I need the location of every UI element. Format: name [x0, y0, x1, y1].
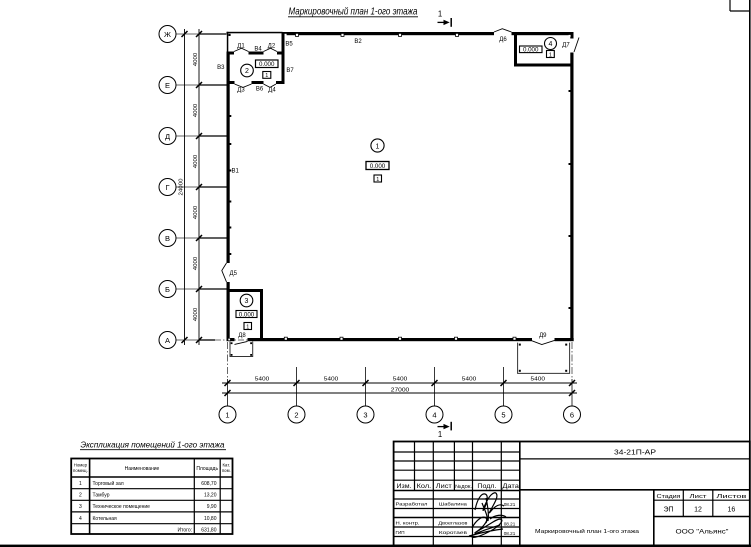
svg-text:631,80: 631,80 — [201, 527, 217, 533]
svg-text:Д5: Д5 — [230, 271, 238, 277]
svg-text:1: 1 — [225, 410, 229, 419]
svg-text:10,80: 10,80 — [204, 516, 217, 522]
svg-text:1: 1 — [376, 143, 380, 150]
svg-text:Д8: Д8 — [238, 333, 246, 339]
svg-text:27000: 27000 — [391, 388, 410, 394]
svg-text:В5: В5 — [285, 42, 293, 48]
svg-text:Маркировочный план 1-ого этажа: Маркировочный план 1-ого этажа — [535, 528, 640, 535]
svg-text:Д: Д — [165, 132, 170, 141]
svg-text:4: 4 — [432, 410, 436, 419]
svg-text:Коротаев: Коротаев — [439, 530, 468, 535]
svg-text:Номер: Номер — [74, 463, 88, 468]
svg-text:Торговый зал: Торговый зал — [93, 480, 124, 487]
svg-text:2: 2 — [294, 410, 298, 419]
svg-text:Изм.: Изм. — [397, 484, 412, 490]
svg-text:08.21: 08.21 — [504, 502, 516, 507]
svg-text:4000: 4000 — [193, 53, 199, 67]
svg-text:0.000: 0.000 — [259, 61, 275, 68]
svg-text:В3: В3 — [217, 65, 225, 71]
svg-text:Разработал: Разработал — [396, 502, 428, 507]
svg-text:2: 2 — [79, 493, 82, 499]
svg-text:6: 6 — [570, 410, 574, 419]
svg-text:1: 1 — [265, 73, 268, 79]
svg-text:ГИП: ГИП — [396, 530, 405, 535]
svg-text:Экспликация помещений 1-ого эт: Экспликация помещений 1-ого этажа — [81, 440, 225, 450]
svg-text:4000: 4000 — [193, 104, 199, 118]
svg-text:Лист: Лист — [690, 494, 708, 500]
svg-text:Д4: Д4 — [268, 88, 276, 94]
svg-text:Двоеглазов: Двоеглазов — [438, 520, 468, 525]
svg-text:0.000: 0.000 — [370, 163, 386, 170]
svg-text:608,70: 608,70 — [201, 481, 217, 487]
svg-text:Площадь: Площадь — [196, 466, 218, 472]
svg-text:0.000: 0.000 — [523, 47, 539, 54]
svg-text:Листов: Листов — [716, 494, 746, 500]
svg-text:1: 1 — [549, 52, 552, 58]
svg-text:4000: 4000 — [193, 308, 199, 322]
svg-text:4000: 4000 — [193, 257, 199, 271]
svg-text:пом.: пом. — [222, 468, 231, 473]
svg-text:Шабалина: Шабалина — [439, 502, 468, 507]
svg-text:Техническое помещение: Техническое помещение — [93, 504, 151, 510]
svg-text:5400: 5400 — [462, 377, 477, 383]
svg-text:4: 4 — [79, 516, 82, 522]
svg-text:В6: В6 — [256, 87, 264, 93]
svg-text:5400: 5400 — [324, 377, 339, 383]
svg-text:№док.: №док. — [455, 484, 472, 490]
svg-text:3: 3 — [245, 298, 249, 305]
svg-text:Тамбур: Тамбур — [93, 493, 110, 499]
svg-text:2: 2 — [245, 68, 249, 75]
svg-text:5400: 5400 — [531, 377, 546, 383]
svg-text:13,20: 13,20 — [204, 493, 217, 499]
svg-text:5400: 5400 — [393, 377, 408, 383]
svg-text:В2: В2 — [354, 39, 362, 45]
svg-text:Маркировочный план 1-ого этажа: Маркировочный план 1-ого этажа — [289, 7, 418, 18]
svg-text:В4: В4 — [254, 47, 262, 53]
svg-text:Д1: Д1 — [237, 44, 245, 50]
svg-text:В7: В7 — [286, 68, 294, 74]
svg-text:Лист: Лист — [436, 484, 452, 490]
svg-text:Н. контр.: Н. контр. — [396, 520, 420, 525]
svg-text:Д3: Д3 — [237, 88, 245, 94]
svg-text:1: 1 — [246, 324, 249, 330]
svg-text:5400: 5400 — [255, 377, 270, 383]
svg-text:24000: 24000 — [179, 179, 185, 196]
svg-text:Итого:: Итого: — [178, 527, 193, 533]
svg-text:0.000: 0.000 — [239, 311, 255, 318]
svg-text:12: 12 — [694, 507, 702, 514]
svg-text:3: 3 — [79, 504, 82, 510]
svg-text:1: 1 — [438, 430, 442, 439]
svg-text:Д6: Д6 — [499, 37, 507, 43]
svg-text:1: 1 — [438, 10, 442, 19]
svg-text:4000: 4000 — [193, 155, 199, 169]
svg-text:08.21: 08.21 — [504, 522, 516, 527]
svg-text:Наименование: Наименование — [125, 466, 160, 472]
svg-text:Д2: Д2 — [268, 44, 276, 50]
svg-text:Ж: Ж — [164, 30, 171, 39]
svg-text:Кат.: Кат. — [223, 463, 230, 468]
svg-text:1: 1 — [79, 481, 82, 487]
svg-text:Е: Е — [165, 81, 170, 90]
svg-text:А: А — [165, 336, 170, 345]
svg-text:5: 5 — [501, 410, 505, 419]
svg-text:В1: В1 — [232, 169, 240, 175]
svg-text:08.21: 08.21 — [504, 531, 516, 536]
svg-text:3: 3 — [363, 410, 367, 419]
svg-text:Стадия: Стадия — [657, 494, 681, 500]
svg-text:1: 1 — [376, 177, 379, 183]
svg-text:помещ.: помещ. — [73, 468, 88, 473]
svg-text:Г: Г — [165, 183, 169, 192]
svg-text:Д7: Д7 — [562, 43, 570, 49]
svg-text:34-21П-АР: 34-21П-АР — [614, 450, 656, 457]
svg-text:9,90: 9,90 — [207, 504, 217, 510]
svg-text:4000: 4000 — [193, 206, 199, 220]
svg-text:ЭП: ЭП — [663, 507, 673, 514]
svg-text:Кол.: Кол. — [417, 484, 432, 490]
svg-text:ООО "Альянс": ООО "Альянс" — [676, 529, 730, 536]
svg-text:Б: Б — [165, 285, 170, 294]
svg-text:16: 16 — [728, 507, 736, 514]
svg-text:Д9: Д9 — [539, 333, 547, 339]
svg-text:Подл.: Подл. — [477, 484, 496, 490]
svg-text:Дата: Дата — [502, 484, 519, 490]
svg-text:Котельная: Котельная — [93, 516, 117, 522]
svg-text:4: 4 — [549, 41, 553, 48]
svg-text:В: В — [165, 234, 170, 243]
